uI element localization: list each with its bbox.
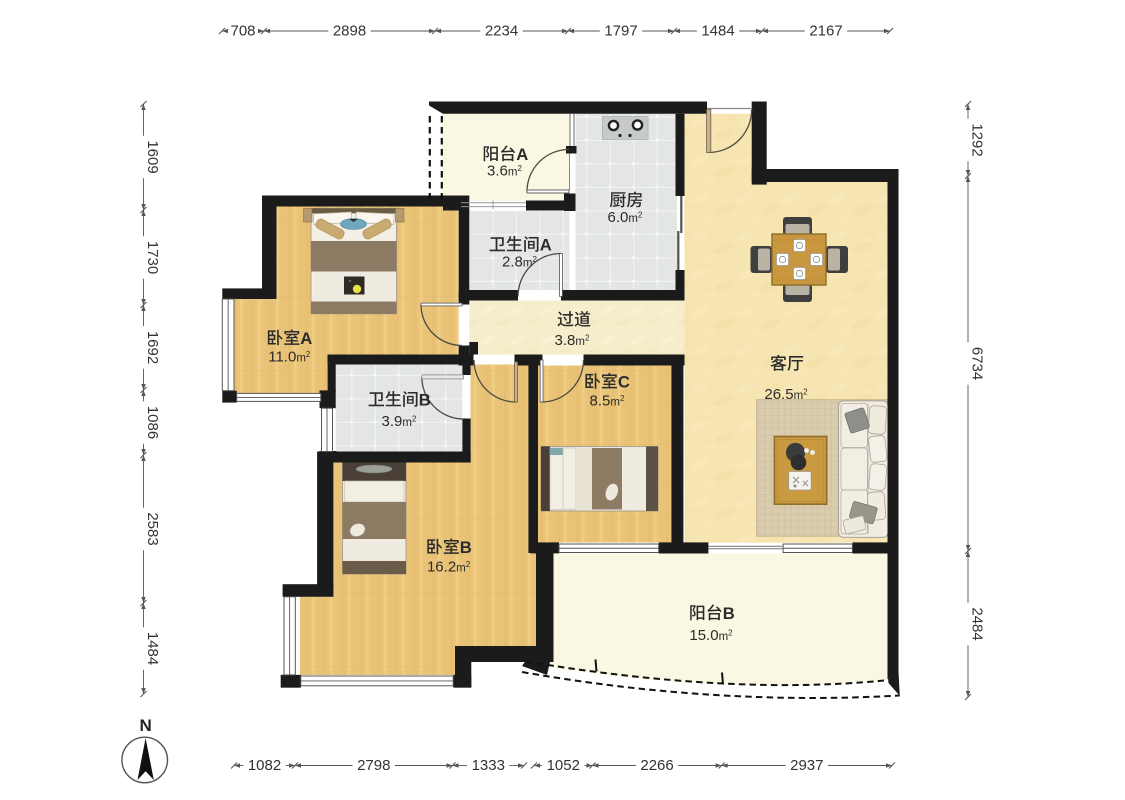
svg-text:1292: 1292 xyxy=(969,123,986,156)
svg-text:3.9m2: 3.9m2 xyxy=(382,413,417,430)
svg-text:A: A xyxy=(540,235,552,254)
svg-text:2.8m2: 2.8m2 xyxy=(502,253,537,270)
svg-text:1333: 1333 xyxy=(472,757,505,774)
svg-text:1082: 1082 xyxy=(248,757,281,774)
svg-text:2266: 2266 xyxy=(640,757,673,774)
svg-text:2798: 2798 xyxy=(357,757,390,774)
svg-text:2583: 2583 xyxy=(144,512,161,545)
svg-text:2937: 2937 xyxy=(790,757,823,774)
svg-text:B: B xyxy=(723,604,735,623)
svg-text:2234: 2234 xyxy=(485,23,518,40)
svg-text:B: B xyxy=(419,390,431,409)
svg-text:2898: 2898 xyxy=(333,23,366,40)
svg-text:C: C xyxy=(618,372,630,391)
svg-text:1484: 1484 xyxy=(144,632,161,665)
svg-text:N: N xyxy=(139,716,151,735)
svg-text:1484: 1484 xyxy=(701,23,734,40)
svg-text:6.0m2: 6.0m2 xyxy=(608,209,643,226)
svg-text:3.6m2: 3.6m2 xyxy=(487,162,522,179)
svg-text:1692: 1692 xyxy=(144,331,161,364)
svg-text:6734: 6734 xyxy=(969,347,986,380)
svg-text:1797: 1797 xyxy=(604,23,637,40)
svg-text:B: B xyxy=(460,538,472,557)
svg-text:1730: 1730 xyxy=(144,241,161,274)
svg-text:1052: 1052 xyxy=(547,757,580,774)
svg-text:708: 708 xyxy=(230,23,255,40)
svg-text:2484: 2484 xyxy=(969,607,986,640)
svg-text:3.8m2: 3.8m2 xyxy=(555,332,590,349)
svg-text:8.5m2: 8.5m2 xyxy=(590,392,625,409)
svg-text:A: A xyxy=(300,329,312,348)
svg-text:1086: 1086 xyxy=(144,406,161,439)
svg-text:A: A xyxy=(516,145,528,164)
svg-text:2167: 2167 xyxy=(809,23,842,40)
svg-text:1609: 1609 xyxy=(144,140,161,173)
